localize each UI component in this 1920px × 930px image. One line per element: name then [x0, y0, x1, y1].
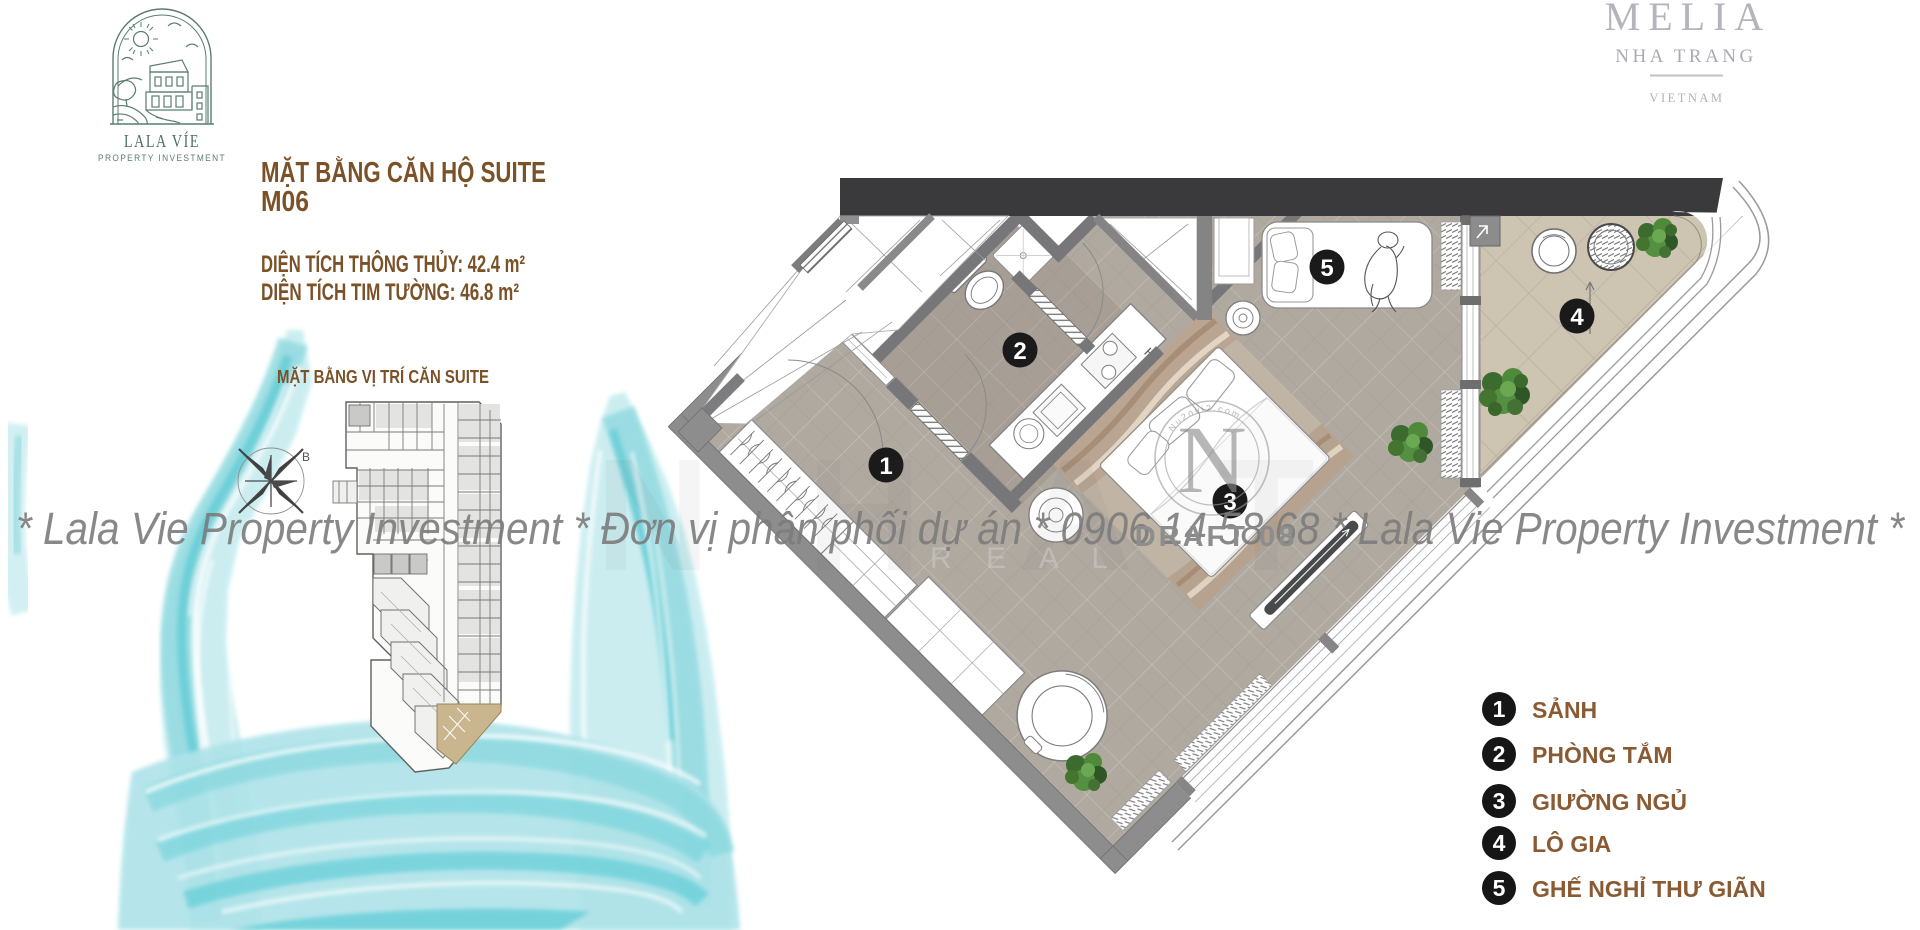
- svg-text:5: 5: [1320, 255, 1333, 282]
- svg-text:5: 5: [1493, 875, 1506, 901]
- svg-text:4: 4: [1493, 830, 1506, 856]
- svg-text:MẶT BẰNG VỊ TRÍ CĂN SUITE: MẶT BẰNG VỊ TRÍ CĂN SUITE: [277, 366, 489, 387]
- svg-text:3: 3: [1493, 788, 1506, 814]
- svg-text:LALA VÍE: LALA VÍE: [124, 130, 200, 151]
- svg-text:NHA TRANG: NHA TRANG: [1615, 46, 1756, 67]
- svg-text:B: B: [302, 450, 310, 464]
- svg-text:4: 4: [1570, 304, 1584, 331]
- svg-text:PHÒNG TẮM: PHÒNG TẮM: [1532, 741, 1673, 768]
- svg-text:MELIA: MELIA: [1605, 0, 1772, 39]
- svg-text:N: N: [1177, 406, 1246, 513]
- svg-text:1: 1: [1493, 696, 1506, 722]
- svg-text:DIỆN TÍCH TIM TƯỜNG: 46.8 m²: DIỆN TÍCH TIM TƯỜNG: 46.8 m²: [261, 278, 519, 306]
- svg-text:GIƯỜNG NGỦ: GIƯỜNG NGỦ: [1532, 787, 1687, 815]
- svg-text:GHẾ NGHỈ THƯ GIÃN: GHẾ NGHỈ THƯ GIÃN: [1532, 874, 1766, 902]
- svg-text:DRAFT 08: DRAFT 08: [1135, 521, 1298, 553]
- svg-text:2: 2: [1493, 741, 1506, 767]
- svg-text:LÔ GIA: LÔ GIA: [1532, 830, 1611, 857]
- svg-text:M06: M06: [261, 186, 309, 218]
- svg-text:DIỆN TÍCH THÔNG THỦY: 42.4 m²: DIỆN TÍCH THÔNG THỦY: 42.4 m²: [261, 249, 525, 278]
- svg-text:* Lala Vie Property Investment: * Lala Vie Property Investment * Đơn vị …: [16, 503, 1905, 554]
- svg-text:MẶT BẰNG CĂN HỘ SUITE: MẶT BẰNG CĂN HỘ SUITE: [261, 155, 546, 189]
- svg-text:PROPERTY INVESTMENT: PROPERTY INVESTMENT: [98, 153, 226, 163]
- svg-text:VIETNAM: VIETNAM: [1649, 91, 1724, 105]
- svg-text:2: 2: [1013, 338, 1026, 365]
- svg-text:SẢNH: SẢNH: [1532, 695, 1597, 723]
